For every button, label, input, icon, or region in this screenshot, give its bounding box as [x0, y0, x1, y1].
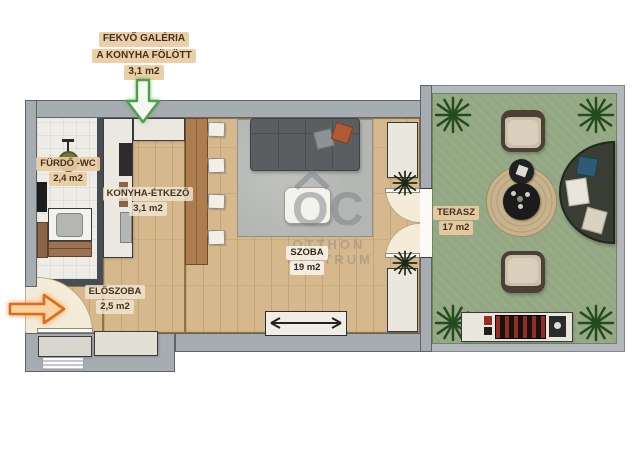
plate — [525, 192, 530, 197]
entry-vent — [42, 357, 84, 370]
plant-icon — [434, 96, 472, 134]
terrace-chair-top — [501, 110, 545, 152]
kitchen-area: 3,1 m2 — [129, 202, 167, 216]
terrace-chair-bottom — [501, 251, 545, 293]
plant-icon — [392, 250, 418, 276]
bathroom-area: 2,4 m2 — [49, 172, 87, 186]
bathroom-drawers — [48, 241, 92, 257]
living-room-area: 19 m2 — [290, 261, 325, 275]
floor-plan: OC OTTHON CENTRUM FEKVŐ GALÉRIA A KONYHA… — [0, 0, 640, 451]
plant-icon — [577, 96, 615, 134]
entry-cabinet-large — [94, 331, 158, 356]
sofa-seam — [305, 120, 306, 169]
hallway-area: 2,5 m2 — [96, 300, 134, 314]
plate — [518, 204, 523, 209]
burner-ring — [554, 322, 561, 329]
kitchen-name: KONYHA-ÉTKEZŐ — [103, 187, 194, 201]
towel-radiator — [37, 182, 47, 212]
terrace-door-opening — [420, 188, 432, 258]
sofa-cushion-white — [565, 178, 589, 207]
kitchen-sink — [120, 212, 132, 243]
hallway-name: ELŐSZOBA — [85, 285, 146, 299]
plant-icon — [392, 170, 418, 196]
radiator — [265, 311, 347, 336]
dining-chair — [208, 194, 226, 210]
bathroom-name: FÜRDŐ -WC — [36, 157, 99, 171]
double-arrow-icon — [267, 313, 345, 333]
arrow-down-icon — [124, 78, 162, 124]
gallery-note-line2: A KONYHA FÖLÖTT — [92, 49, 195, 64]
dining-chair — [208, 158, 226, 174]
wall-left — [25, 100, 37, 287]
entrance-door-leaf — [37, 328, 93, 333]
terrace-area: 17 m2 — [439, 221, 474, 235]
gallery-note-line1: FEKVŐ GALÉRIA — [99, 32, 189, 47]
living-room-label: SZOBA 19 m2 — [281, 246, 333, 275]
entry-cabinet-small — [38, 336, 92, 357]
cup — [517, 196, 523, 202]
terrace-label: TERASZ 17 m2 — [432, 206, 480, 235]
gallery-note-label: FEKVŐ GALÉRIA A KONYHA FÖLÖTT 3,1 m2 — [86, 32, 202, 80]
sofa-cushion-blue — [576, 155, 599, 177]
terrace-name: TERASZ — [433, 206, 479, 220]
grill-top — [495, 315, 546, 339]
plant-icon — [577, 304, 615, 342]
fridge — [119, 143, 132, 176]
bathroom-label: FÜRDŐ -WC 2,4 m2 — [36, 157, 100, 186]
arrow-right-icon — [6, 291, 68, 327]
plate — [511, 191, 516, 196]
living-room-name: SZOBA — [286, 246, 327, 260]
bathroom-side-cabinet — [37, 222, 48, 258]
wardrobe-bottom — [387, 268, 418, 332]
grill-knob-red — [484, 316, 492, 325]
sofa-seam — [278, 120, 279, 169]
grill-knob-black — [484, 327, 492, 335]
wall-top — [25, 100, 432, 118]
dining-chair — [208, 122, 226, 138]
washing-machine-door — [56, 213, 83, 237]
kitchen-label: KONYHA-ÉTKEZŐ 3,1 m2 — [102, 187, 194, 216]
hallway-label: ELŐSZOBA 2,5 m2 — [78, 285, 152, 314]
watermark-logo: OC — [292, 185, 365, 232]
dining-chair — [208, 230, 226, 246]
